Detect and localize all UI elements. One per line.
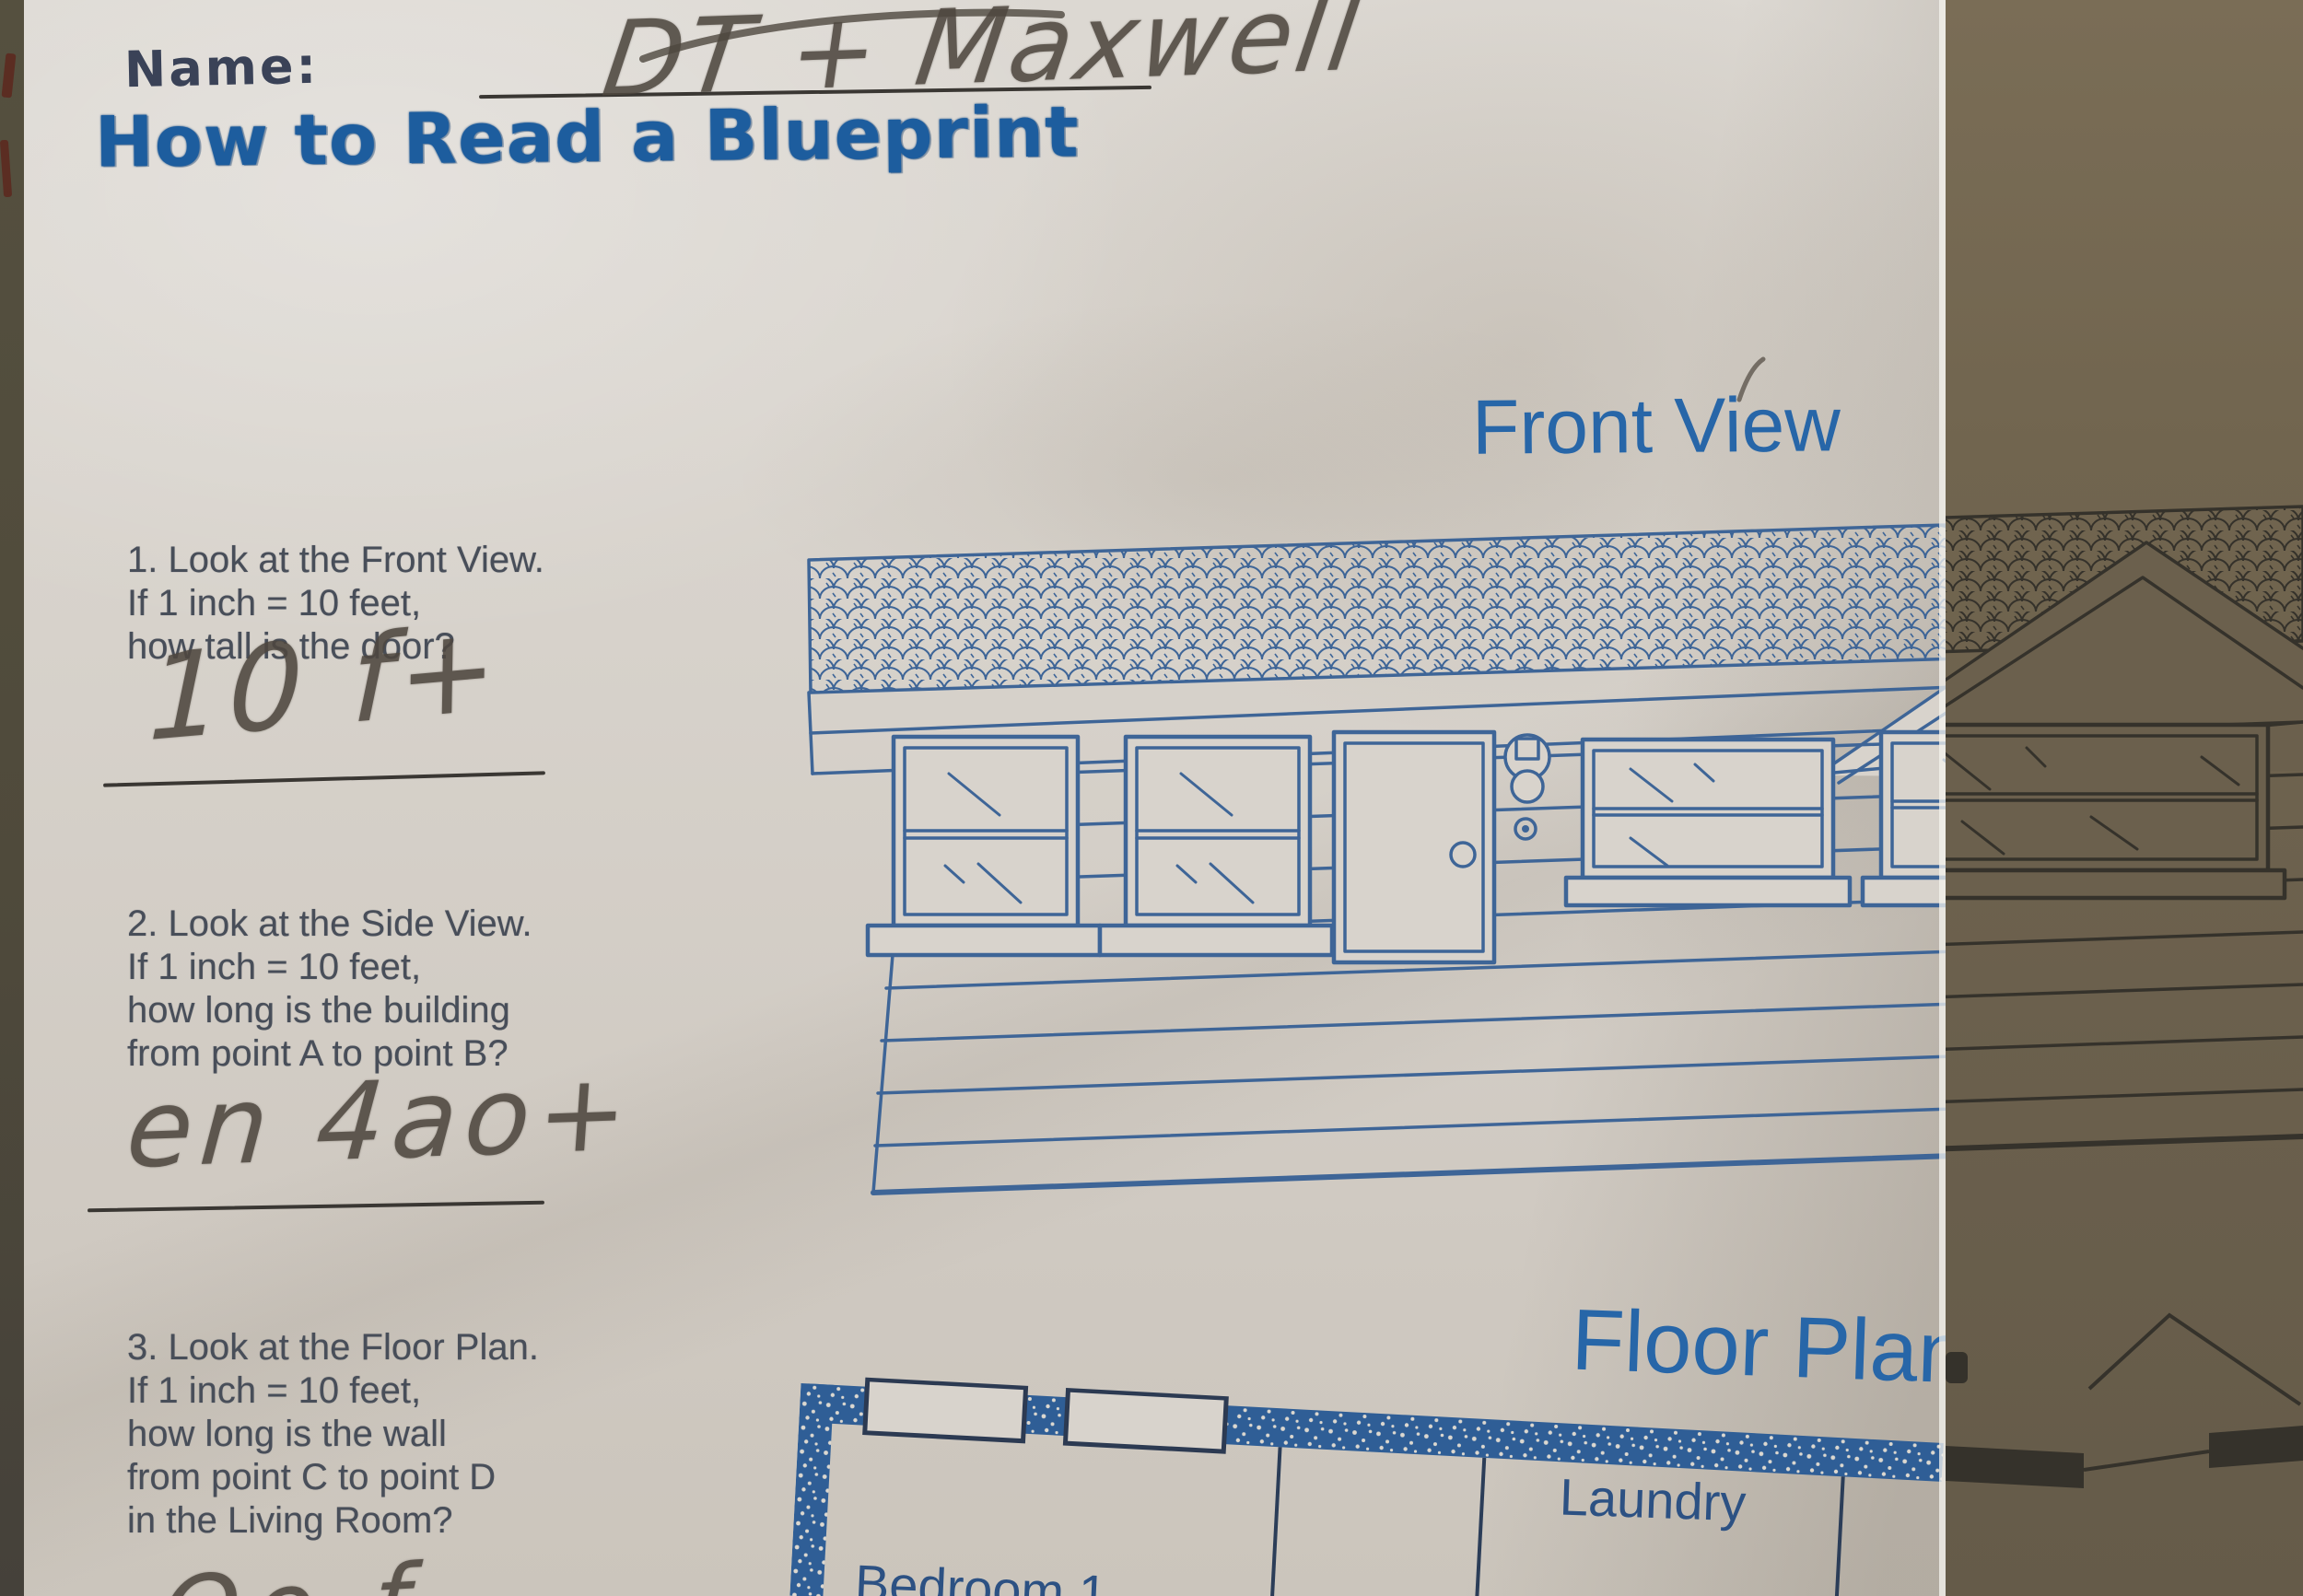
photo-of-worksheet: Name: DT + Maxwell How to Read a Bluepri… [0, 0, 2303, 1596]
gable-shadow-line [2089, 1315, 2300, 1404]
front-view-label: Front View [1472, 379, 1841, 472]
question-1-line: 1. Look at the Front View. [127, 539, 643, 582]
interior-wall [1834, 1476, 1843, 1596]
worksheet-paper: Name: DT + Maxwell How to Read a Bluepri… [24, 0, 1946, 1596]
floor-plan-shadow-fragments [1946, 1271, 2303, 1596]
front-view-drawing [765, 497, 1946, 1197]
edge-red-mark [2, 53, 17, 99]
handwritten-answer-2: en 4ao+ [123, 1050, 638, 1193]
interior-wall [1271, 1447, 1280, 1596]
exterior-wall-left [789, 1383, 834, 1596]
room-label-laundry: Laundry [1559, 1466, 1748, 1532]
under-sheet-shadow-region [1946, 0, 2303, 1596]
answer-line-2 [88, 1201, 544, 1213]
question-2-line: If 1 inch = 10 feet, [127, 946, 643, 989]
wall-shadow-line [2084, 1451, 2209, 1470]
question-2: 2. Look at the Side View. If 1 inch = 10… [127, 903, 643, 1076]
house-elevation [1946, 507, 2303, 1185]
question-2-line: 2. Look at the Side View. [127, 903, 643, 946]
question-3-line: in the Living Room? [127, 1499, 643, 1543]
interior-wall [1475, 1458, 1484, 1596]
page-title: How to Read a Blueprint [95, 90, 1080, 182]
question-3-line: how long is the wall [127, 1413, 643, 1456]
photo-left-edge [0, 0, 24, 1596]
pencil-tick [1726, 352, 1782, 407]
front-view-drawing-shadowed [1946, 490, 2303, 1190]
plan-window-opening [1065, 1390, 1226, 1451]
question-3-line: 3. Look at the Floor Plan. [127, 1326, 643, 1369]
plan-window-opening [865, 1380, 1026, 1441]
question-2-line: how long is the building [127, 989, 643, 1032]
edge-red-mark [0, 140, 12, 197]
question-3-line: from point C to point D [127, 1456, 643, 1499]
wall-shadow-segment [1946, 1446, 2084, 1488]
answer-line-1 [103, 771, 545, 786]
house-elevation [809, 514, 1946, 1193]
question-3: 3. Look at the Floor Plan. If 1 inch = 1… [127, 1326, 643, 1543]
wall-shadow-segment [2209, 1426, 2303, 1468]
name-label: Name: [123, 37, 319, 99]
label-ink-fragment [1946, 1352, 1968, 1383]
pencil-swoosh [636, 0, 1078, 74]
question-3-line: If 1 inch = 10 feet, [127, 1369, 643, 1413]
floor-plan-label: Floor Plan [1570, 1290, 1946, 1404]
handwritten-answer-3-partial: Oo f [158, 1542, 425, 1596]
